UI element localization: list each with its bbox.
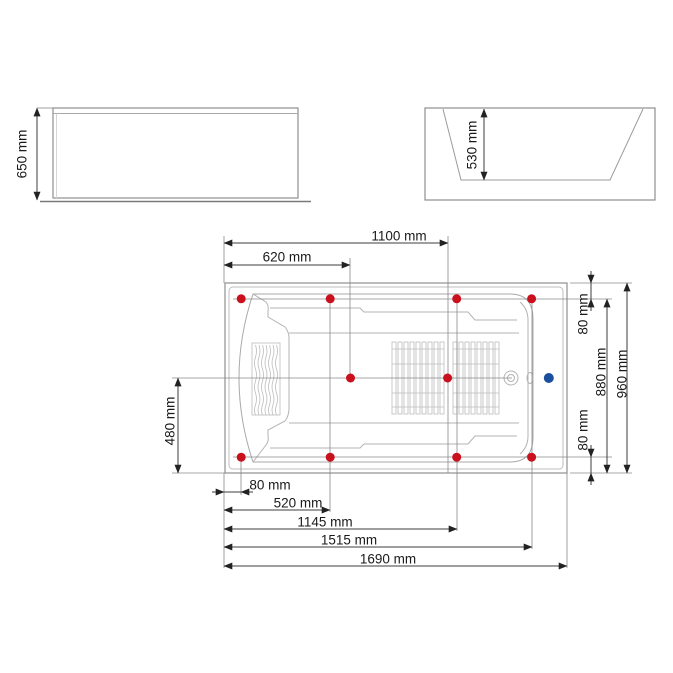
dim-label-880: 880 mm [594,348,608,397]
jet-dot [237,294,246,303]
dim-label-520: 520 mm [274,496,323,510]
end-view [425,108,655,200]
dim-label-1515: 1515 mm [321,533,377,547]
side-view [37,108,311,202]
drawing-linework [0,0,673,673]
dim-label-1690: 1690 mm [360,552,416,566]
dim-label-1145: 1145 mm [297,515,352,529]
water-inlet-dot [544,373,554,383]
jet-dot [443,374,452,383]
technical-drawing-canvas: 650 mm 530 mm 1100 mm 620 mm 80 mm 520 m… [0,0,673,673]
dim-label-650: 650 mm [15,130,29,179]
dim-label-480: 480 mm [163,397,177,446]
dim-label-960: 960 mm [615,350,629,399]
jet-dot [452,453,461,462]
dim-label-1100: 1100 mm [371,229,426,243]
dim-label-80-bottom: 80 mm [249,478,290,492]
dim-label-620: 620 mm [263,250,312,264]
jet-dot [326,294,335,303]
jet-dot [326,453,335,462]
dim-label-530: 530 mm [465,121,479,170]
jet-dot [527,294,536,303]
dim-label-80-right-top: 80 mm [576,293,590,334]
dim-label-80-right-bottom: 80 mm [576,409,590,450]
pillow-texture [252,343,280,415]
jet-dot [527,453,536,462]
jet-dot [237,453,246,462]
dimension-lines [178,243,627,566]
jet-dot [452,294,461,303]
jet-dot [346,374,355,383]
